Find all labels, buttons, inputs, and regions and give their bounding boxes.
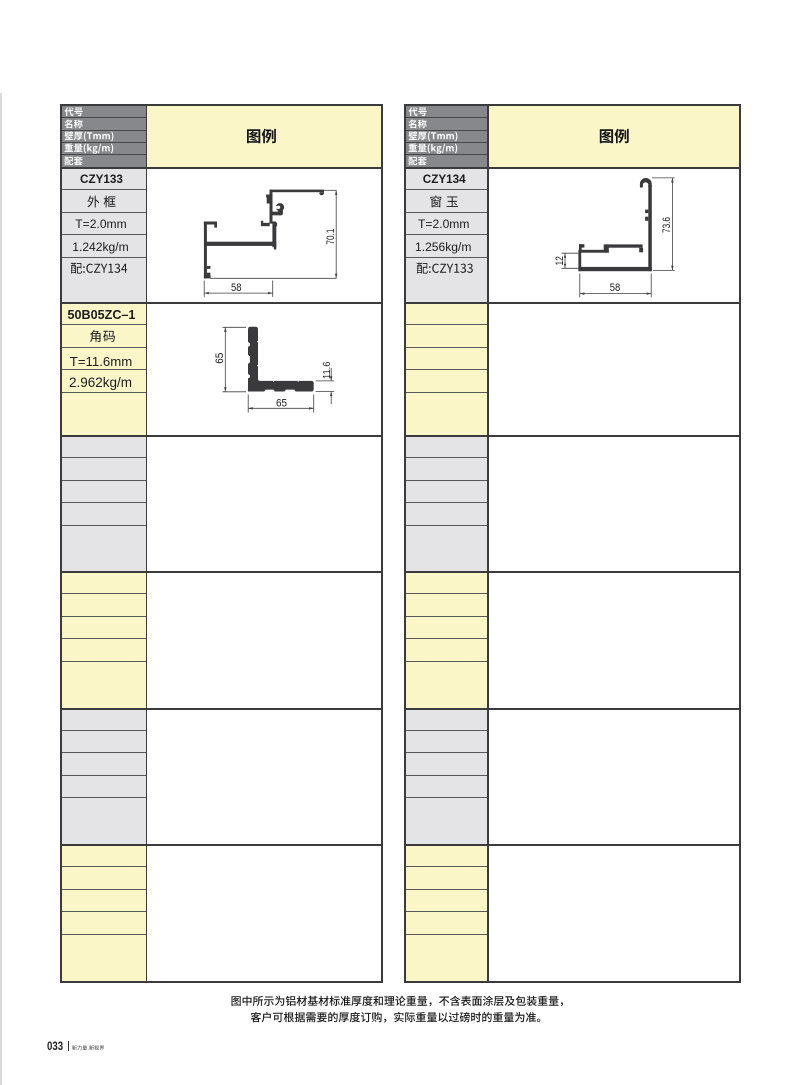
svg-text:73.6: 73.6 — [661, 217, 673, 233]
svg-text:65: 65 — [214, 353, 226, 364]
svg-text:70.1: 70.1 — [325, 229, 337, 245]
svg-text:58: 58 — [610, 282, 621, 294]
svg-text:11.6: 11.6 — [321, 361, 333, 379]
svg-text:65: 65 — [276, 397, 287, 409]
svg-text:58: 58 — [231, 282, 242, 294]
svg-text:12: 12 — [554, 256, 566, 266]
